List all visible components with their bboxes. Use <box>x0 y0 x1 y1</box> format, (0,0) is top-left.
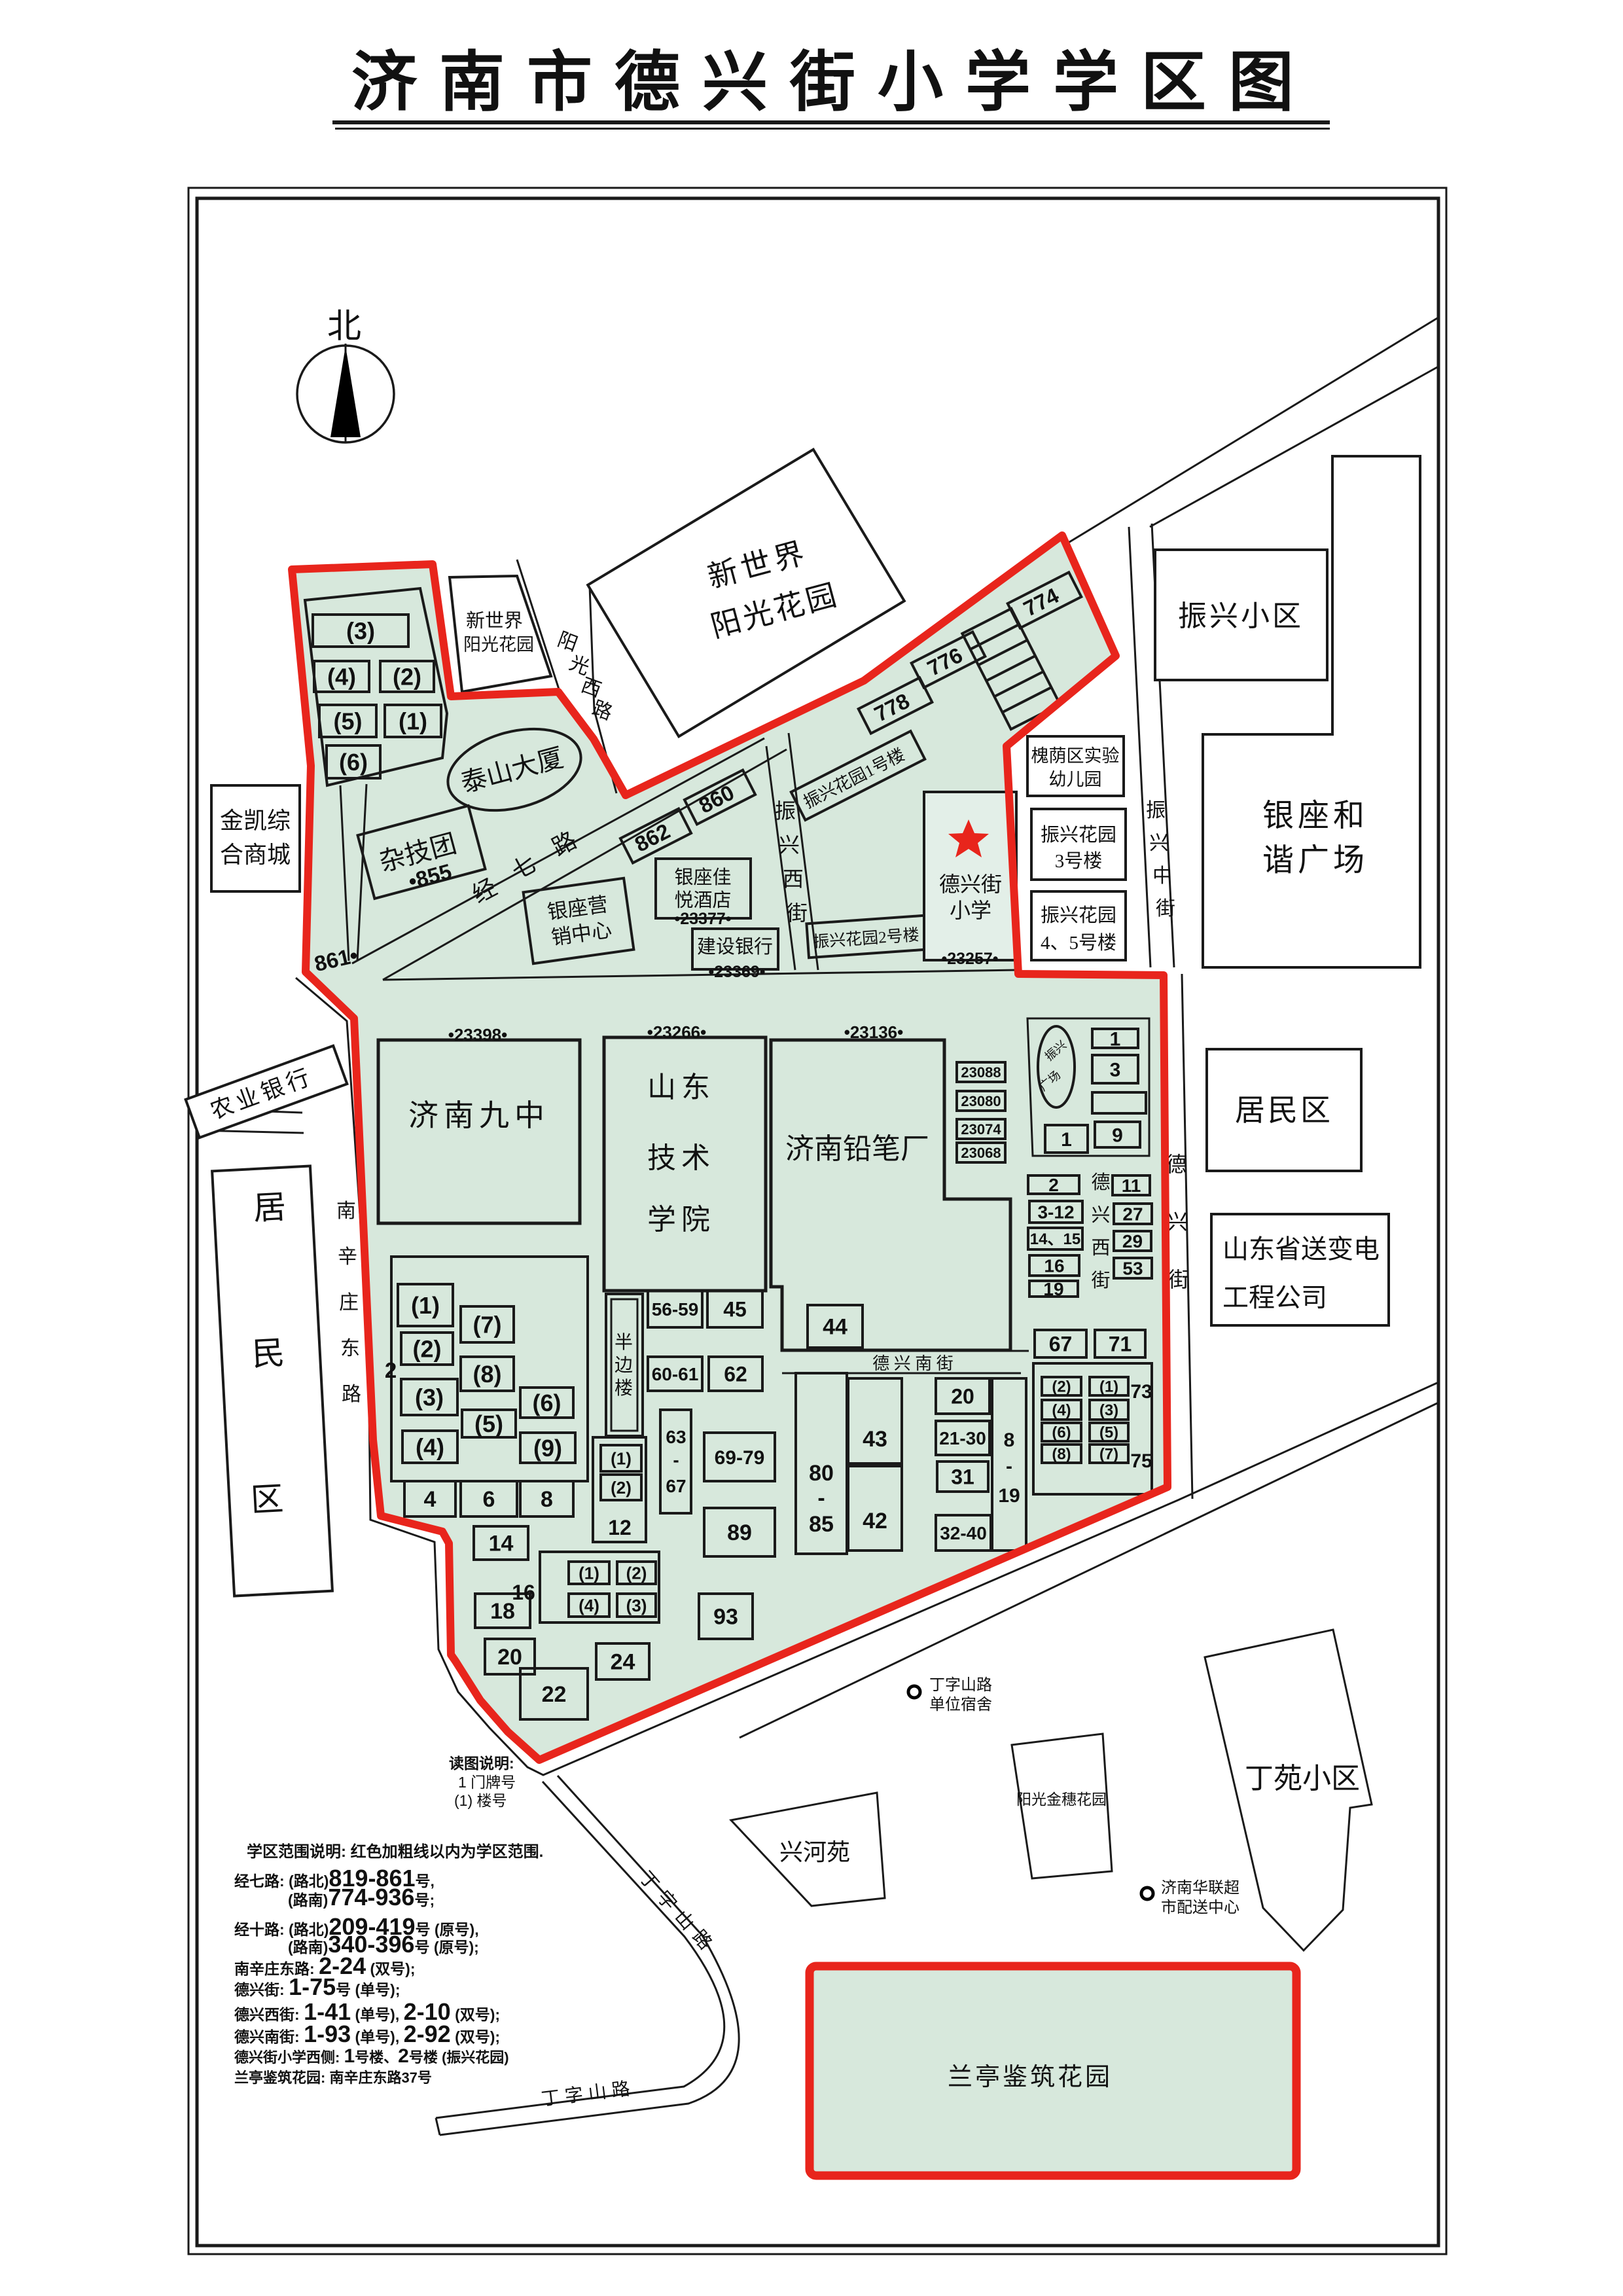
svg-text:兴: 兴 <box>1091 1205 1110 1226</box>
svg-text:(3): (3) <box>1099 1402 1118 1420</box>
svg-text:楼: 楼 <box>615 1378 633 1399</box>
svg-text:山东: 山东 <box>647 1071 715 1103</box>
svg-text:63: 63 <box>666 1427 686 1447</box>
svg-text:边: 边 <box>615 1355 633 1376</box>
svg-text:89: 89 <box>727 1520 752 1545</box>
svg-text:19: 19 <box>1043 1279 1063 1299</box>
svg-text:1 门牌号: 1 门牌号 <box>458 1774 516 1791</box>
svg-text:丁字山路: 丁字山路 <box>929 1676 992 1694</box>
svg-text:12: 12 <box>608 1516 632 1539</box>
svg-text:小学: 小学 <box>950 899 991 922</box>
svg-text:23088: 23088 <box>961 1064 1001 1081</box>
svg-text:•23257•: •23257• <box>941 950 998 968</box>
svg-text:振: 振 <box>1146 800 1166 821</box>
svg-text:20: 20 <box>497 1645 522 1670</box>
svg-text:街: 街 <box>1168 1268 1189 1291</box>
svg-text:4: 4 <box>424 1487 437 1512</box>
svg-text:85: 85 <box>809 1512 834 1537</box>
svg-text:14: 14 <box>489 1532 514 1556</box>
svg-text:区: 区 <box>250 1480 285 1519</box>
svg-text:济南华联超: 济南华联超 <box>1161 1879 1240 1897</box>
svg-text:22: 22 <box>542 1682 567 1707</box>
svg-text:(2): (2) <box>611 1478 632 1498</box>
svg-text:(1): (1) <box>579 1563 599 1583</box>
svg-text:(2): (2) <box>1052 1378 1071 1396</box>
svg-text:(1): (1) <box>411 1292 440 1319</box>
svg-text:62: 62 <box>724 1363 747 1386</box>
svg-text:27: 27 <box>1122 1204 1143 1225</box>
svg-text:阳光金穗花园: 阳光金穗花园 <box>1016 1791 1107 1808</box>
svg-text:1: 1 <box>1110 1028 1121 1050</box>
svg-text:(3): (3) <box>415 1384 444 1410</box>
svg-text:谐广场: 谐广场 <box>1262 843 1368 878</box>
svg-text:29: 29 <box>1122 1231 1143 1251</box>
svg-text:居民区: 居民区 <box>1235 1094 1333 1127</box>
svg-text:东: 东 <box>340 1338 360 1359</box>
svg-text:9: 9 <box>1112 1124 1123 1146</box>
svg-text:24: 24 <box>611 1650 635 1675</box>
svg-text:•23266•: •23266• <box>647 1022 707 1042</box>
svg-text:(4): (4) <box>416 1433 444 1460</box>
svg-text:(6): (6) <box>1052 1424 1071 1442</box>
svg-text:3号楼: 3号楼 <box>1055 850 1103 872</box>
svg-text:20: 20 <box>951 1385 974 1408</box>
svg-text:振兴花园: 振兴花园 <box>1041 824 1116 846</box>
svg-text:阳光花园: 阳光花园 <box>463 635 534 655</box>
svg-text:•23369•: •23369• <box>708 963 765 981</box>
svg-text:单位宿舍: 单位宿舍 <box>929 1696 992 1713</box>
svg-text:辛: 辛 <box>338 1246 357 1268</box>
svg-text:济南九中: 济南九中 <box>408 1099 550 1132</box>
svg-text:银座和: 银座和 <box>1262 798 1368 833</box>
svg-text:兴: 兴 <box>1149 833 1169 854</box>
svg-text:学院: 学院 <box>647 1204 715 1236</box>
svg-text:(5): (5) <box>474 1410 503 1437</box>
svg-text:银座佳: 银座佳 <box>674 867 731 888</box>
svg-text:6: 6 <box>483 1487 495 1512</box>
svg-text:市配送中心: 市配送中心 <box>1161 1899 1240 1916</box>
svg-text:(9): (9) <box>533 1435 562 1462</box>
svg-text:(7): (7) <box>473 1311 502 1338</box>
svg-text:44: 44 <box>823 1315 847 1340</box>
svg-text:(4): (4) <box>327 663 356 690</box>
svg-text:中: 中 <box>1152 865 1172 887</box>
svg-text:幼儿园: 幼儿园 <box>1049 770 1102 789</box>
svg-text:(8): (8) <box>473 1361 502 1388</box>
svg-text:新世界: 新世界 <box>466 610 523 632</box>
svg-text:(7): (7) <box>1099 1446 1118 1463</box>
svg-text:振兴小区: 振兴小区 <box>1178 600 1304 632</box>
svg-text:21-30: 21-30 <box>939 1428 986 1448</box>
svg-text:兴: 兴 <box>779 833 800 857</box>
svg-text:山东省送变电: 山东省送变电 <box>1222 1234 1380 1264</box>
svg-text:悦酒店: 悦酒店 <box>674 889 731 911</box>
svg-text:•23398•: •23398• <box>448 1025 508 1045</box>
svg-text:(3): (3) <box>346 617 375 644</box>
svg-text:45: 45 <box>723 1298 747 1321</box>
svg-text:71: 71 <box>1109 1333 1132 1356</box>
svg-text:73: 73 <box>1130 1381 1152 1403</box>
svg-text:民: 民 <box>251 1335 286 1373</box>
svg-text:(5): (5) <box>1099 1424 1118 1442</box>
svg-text:路: 路 <box>342 1384 361 1405</box>
svg-text:93: 93 <box>713 1605 738 1630</box>
svg-text:(2): (2) <box>413 1335 442 1362</box>
svg-text:(2): (2) <box>393 663 421 690</box>
svg-text:16: 16 <box>1044 1256 1064 1276</box>
svg-text:建设银行: 建设银行 <box>697 936 773 958</box>
svg-text:兰亭鉴筑花园: 南辛庄东路37号: 兰亭鉴筑花园: 南辛庄东路37号 <box>234 2070 432 2086</box>
svg-text:兰亭鉴筑花园: 兰亭鉴筑花园 <box>948 2064 1113 2091</box>
svg-text:学区范围说明: 红色加粗线以内为学区范围.: 学区范围说明: 红色加粗线以内为学区范围. <box>247 1842 543 1861</box>
svg-text:4、5号楼: 4、5号楼 <box>1041 932 1116 954</box>
svg-text:(4): (4) <box>579 1596 599 1615</box>
svg-text:半: 半 <box>615 1332 633 1353</box>
svg-text:31: 31 <box>951 1465 974 1489</box>
svg-text:3: 3 <box>1110 1059 1121 1081</box>
svg-text:80: 80 <box>809 1461 834 1486</box>
svg-text:金凯综: 金凯综 <box>220 808 291 834</box>
svg-text:43: 43 <box>863 1427 887 1452</box>
svg-text:23074: 23074 <box>961 1121 1001 1138</box>
svg-text:23080: 23080 <box>961 1093 1001 1109</box>
svg-text:街: 街 <box>1091 1270 1110 1291</box>
svg-text:兴河苑: 兴河苑 <box>779 1839 850 1865</box>
svg-text:槐荫区实验: 槐荫区实验 <box>1031 746 1120 766</box>
svg-text:北: 北 <box>327 308 361 346</box>
svg-text:-: - <box>1006 1456 1012 1477</box>
svg-text:42: 42 <box>863 1509 887 1534</box>
svg-text:工程公司: 工程公司 <box>1222 1283 1327 1312</box>
svg-text:60-61: 60-61 <box>652 1364 699 1384</box>
svg-text:•23377•: •23377• <box>674 910 731 928</box>
svg-text:14、15: 14、15 <box>1030 1230 1080 1248</box>
svg-text:济南铅笔厂: 济南铅笔厂 <box>785 1133 929 1165</box>
svg-text:居: 居 <box>253 1189 287 1227</box>
svg-text:(4): (4) <box>1052 1402 1071 1420</box>
svg-text:技术: 技术 <box>647 1142 715 1174</box>
svg-text:西: 西 <box>783 867 804 891</box>
svg-text:•23136•: •23136• <box>844 1022 904 1042</box>
svg-text:(1): (1) <box>1099 1378 1118 1396</box>
svg-text:(8): (8) <box>1052 1446 1071 1463</box>
svg-text:(1): (1) <box>399 708 427 734</box>
svg-text:庄: 庄 <box>339 1292 359 1314</box>
svg-text:(3): (3) <box>626 1596 647 1615</box>
svg-text:合商城: 合商城 <box>220 842 291 868</box>
svg-text:2: 2 <box>385 1358 397 1382</box>
svg-text:(6): (6) <box>533 1390 562 1416</box>
svg-text:兴: 兴 <box>1167 1210 1188 1234</box>
svg-text:德兴街: 德兴街 <box>939 872 1002 896</box>
svg-text:丁苑小区: 丁苑小区 <box>1245 1763 1360 1795</box>
svg-text:8: 8 <box>1004 1429 1015 1451</box>
svg-text:德: 德 <box>1091 1172 1110 1193</box>
svg-text:(1) 楼号: (1) 楼号 <box>454 1792 507 1809</box>
svg-text:振: 振 <box>775 799 796 823</box>
svg-text:53: 53 <box>1122 1259 1143 1279</box>
svg-text:街: 街 <box>1156 898 1175 920</box>
svg-text:振兴花园: 振兴花园 <box>1041 905 1116 926</box>
svg-text:德 兴 南 街: 德 兴 南 街 <box>872 1354 954 1373</box>
svg-text:-: - <box>817 1486 825 1511</box>
svg-text:-: - <box>673 1450 679 1470</box>
svg-text:8: 8 <box>541 1487 553 1512</box>
svg-text:(5): (5) <box>334 708 363 734</box>
svg-text:街: 街 <box>787 901 808 925</box>
svg-text:11: 11 <box>1122 1175 1141 1196</box>
svg-text:济南市德兴街小学学区图: 济南市德兴街小学学区图 <box>351 46 1316 119</box>
svg-text:67: 67 <box>1049 1333 1073 1356</box>
svg-text:69-79: 69-79 <box>715 1447 765 1469</box>
svg-text:32-40: 32-40 <box>940 1523 987 1543</box>
svg-text:南: 南 <box>336 1200 356 1222</box>
svg-text:西: 西 <box>1091 1238 1110 1259</box>
svg-text:67: 67 <box>666 1476 686 1496</box>
svg-text:2: 2 <box>1048 1175 1059 1195</box>
svg-text:56-59: 56-59 <box>652 1299 699 1319</box>
svg-text:23068: 23068 <box>961 1145 1001 1161</box>
svg-text:(1): (1) <box>611 1448 632 1468</box>
svg-text:(6): (6) <box>339 749 368 776</box>
svg-text:75: 75 <box>1130 1450 1152 1472</box>
svg-text:19: 19 <box>998 1485 1020 1507</box>
svg-text:(2): (2) <box>626 1563 647 1583</box>
svg-text:读图说明:: 读图说明: <box>449 1755 514 1772</box>
svg-text:3-12: 3-12 <box>1037 1202 1074 1223</box>
svg-text:1: 1 <box>1061 1129 1072 1151</box>
svg-text:16: 16 <box>512 1581 535 1604</box>
